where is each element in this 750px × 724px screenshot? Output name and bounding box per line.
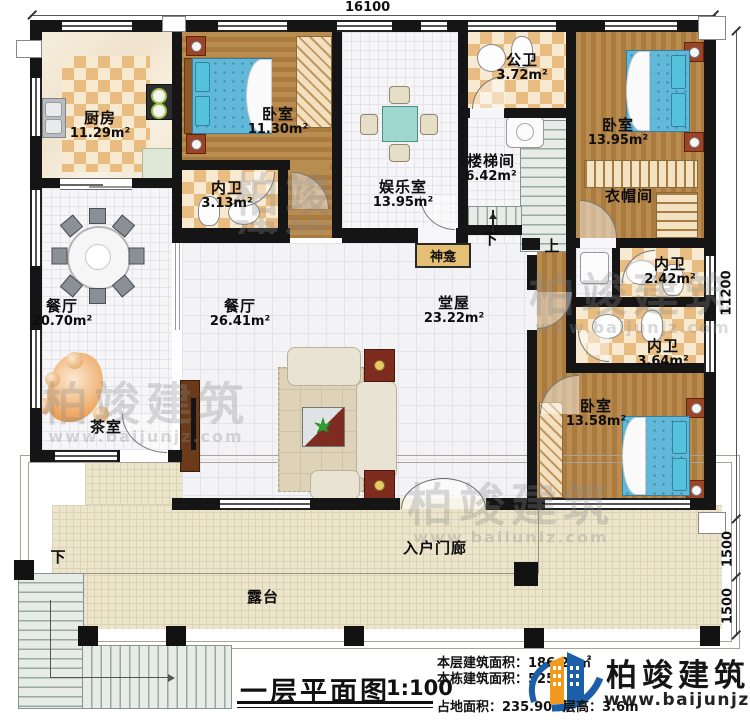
window-symbol	[468, 20, 556, 32]
pillar	[514, 562, 538, 586]
door-gap	[418, 228, 456, 243]
wall-cap	[698, 16, 726, 40]
room-label-bath2: 内卫 2.42m²	[644, 256, 695, 287]
room-label-tea-room: 茶室	[90, 419, 122, 436]
dimension-line-right	[736, 30, 737, 636]
wall-stair-bedroom2	[566, 20, 576, 250]
sliding-door	[60, 178, 132, 190]
dimension-line-top	[30, 15, 716, 16]
wall-kitchen-right	[172, 20, 182, 238]
wall-ent-stair	[458, 20, 468, 243]
nightstand	[684, 132, 704, 152]
room-label-terrace: 露台	[247, 589, 279, 606]
tea-decor-ball	[66, 352, 83, 369]
nightstand	[686, 398, 706, 418]
exterior-stair-down-label: 下	[50, 549, 65, 566]
nightstand	[186, 36, 206, 56]
shrine-box: 神龛	[415, 243, 471, 268]
bed-pillow	[672, 421, 687, 454]
wall-cap	[162, 16, 186, 32]
room-label-cloakroom: 衣帽间	[605, 188, 653, 205]
floor-plan: 16100 11200 1500 1500	[0, 0, 750, 724]
stair-rail-line	[50, 600, 51, 678]
wall-bath1-bottom	[172, 228, 290, 243]
room-label-entertainment: 娱乐室 13.95m²	[373, 179, 433, 210]
stair-up-label: 上	[544, 238, 559, 255]
room-label-kitchen: 厨房 11.29m²	[70, 110, 130, 141]
wall-nook-bath2	[612, 248, 620, 297]
bed-pillow	[195, 62, 210, 92]
porch-divider-line	[55, 573, 538, 574]
room-label-stairwell: 楼梯间 6.42m²	[465, 153, 516, 184]
washing-machine	[580, 252, 609, 284]
brand-name: 柏竣建筑	[606, 650, 750, 695]
stove-burner	[151, 103, 167, 119]
tv	[191, 398, 196, 450]
room-label-bath1: 内卫 3.13m²	[201, 180, 252, 211]
kitchen-sink-basin	[45, 102, 62, 117]
window-symbol	[605, 20, 677, 32]
room-label-dining-left: 餐厅 20.70m²	[32, 298, 92, 329]
room-label-porch: 入户门廊	[403, 540, 467, 557]
wall-bedroom1-ent	[332, 20, 342, 238]
sofa-bottom	[310, 470, 360, 500]
room-label-dining-center: 餐厅 26.41m²	[210, 298, 270, 329]
round-dining-table-center	[85, 244, 111, 270]
stair-arrow-line	[50, 677, 170, 678]
pillar	[524, 628, 544, 648]
bed-pillow	[672, 458, 687, 491]
window-symbol	[337, 20, 392, 32]
window-symbol	[30, 78, 42, 136]
dimension-1500a-label: 1500	[721, 531, 736, 567]
window-symbol	[218, 20, 287, 32]
window-symbol	[30, 330, 42, 408]
window-symbol	[421, 20, 447, 32]
door-gap	[580, 238, 616, 248]
water-heater	[506, 116, 544, 148]
kitchen-cabinet	[142, 148, 174, 180]
wall-cap	[16, 40, 42, 58]
nightstand	[186, 134, 206, 154]
pillar	[700, 626, 720, 646]
shrine-label: 神龛	[430, 246, 456, 265]
door-gap	[527, 290, 537, 330]
room-label-bedroom-top: 卧室 11.30m²	[248, 106, 308, 137]
room-label-bedroom-rb: 卧室 13.58m²	[566, 398, 626, 429]
bed-pillow	[195, 96, 210, 126]
stat-storey-height: 层高：3.6m	[563, 696, 639, 715]
dimension-top-label: 16100	[345, 0, 390, 15]
chair	[360, 114, 378, 135]
pillar	[14, 560, 34, 580]
window-symbol	[55, 450, 117, 462]
understair-closet	[539, 402, 563, 498]
window-symbol	[704, 256, 716, 295]
chair	[389, 86, 410, 104]
end-table-medallion	[374, 360, 385, 371]
sofa-top	[287, 347, 361, 386]
chair	[389, 144, 410, 162]
clothes-rack	[584, 160, 698, 188]
door-gap	[470, 108, 504, 118]
tv-cabinet	[180, 380, 200, 472]
window-symbol	[30, 190, 42, 266]
room-label-hall: 堂屋 23.22m²	[424, 295, 484, 326]
wall-stair-corner	[522, 238, 540, 250]
end-table-medallion	[374, 480, 385, 491]
bed-pillow	[671, 93, 686, 127]
kitchen-sink-basin	[45, 119, 62, 134]
exterior-stairs-vertical	[18, 573, 84, 709]
dimension-right-label: 11200	[720, 270, 735, 315]
chair	[420, 114, 438, 135]
chair	[89, 208, 106, 224]
title-underline-thin	[237, 707, 433, 708]
bed-pillow	[671, 55, 686, 89]
stair-arrow-head	[168, 674, 179, 682]
pillar	[78, 626, 98, 646]
title-underline	[237, 701, 433, 704]
wall-bedroom1-bottom	[182, 160, 290, 170]
window-symbol	[220, 498, 310, 510]
stove-burner	[151, 88, 167, 104]
wall-bath2-bath3	[566, 297, 716, 307]
pillar	[166, 626, 186, 646]
sofa-right	[356, 381, 397, 479]
clothes-rack	[656, 192, 698, 238]
window-symbol	[62, 20, 132, 32]
porch-divider-line	[538, 505, 539, 574]
game-table	[382, 106, 418, 142]
wall-bathcol-left	[566, 248, 576, 373]
dimension-1500b-label: 1500	[721, 588, 736, 624]
pillar	[344, 626, 364, 646]
window-symbol	[704, 321, 716, 372]
door-gap	[290, 160, 330, 170]
window-symbol	[545, 498, 690, 510]
room-label-bath3: 内卫 3.64m²	[637, 338, 688, 369]
tea-decor-ball	[45, 372, 60, 387]
room-label-public-bath: 公卫 3.72m²	[496, 52, 547, 83]
chair	[52, 248, 68, 265]
room-label-bedroom-rt: 卧室 13.95m²	[588, 117, 648, 148]
stair-down-label: 下	[482, 231, 497, 248]
chair	[129, 248, 145, 265]
